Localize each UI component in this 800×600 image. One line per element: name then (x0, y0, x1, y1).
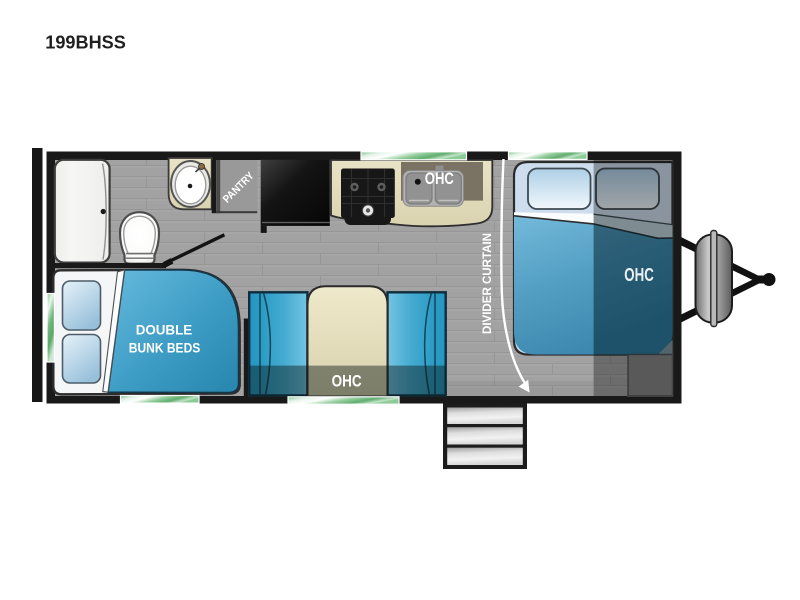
svg-text:OHC: OHC (332, 372, 362, 391)
svg-text:DOUBLE: DOUBLE (136, 323, 193, 338)
svg-text:OHC: OHC (425, 169, 454, 188)
svg-text:BUNK BEDS: BUNK BEDS (129, 340, 201, 355)
svg-text:OHC: OHC (624, 265, 654, 285)
svg-text:DIVIDER CURTAIN: DIVIDER CURTAIN (480, 233, 494, 334)
svg-text:199BHSS: 199BHSS (45, 31, 126, 52)
